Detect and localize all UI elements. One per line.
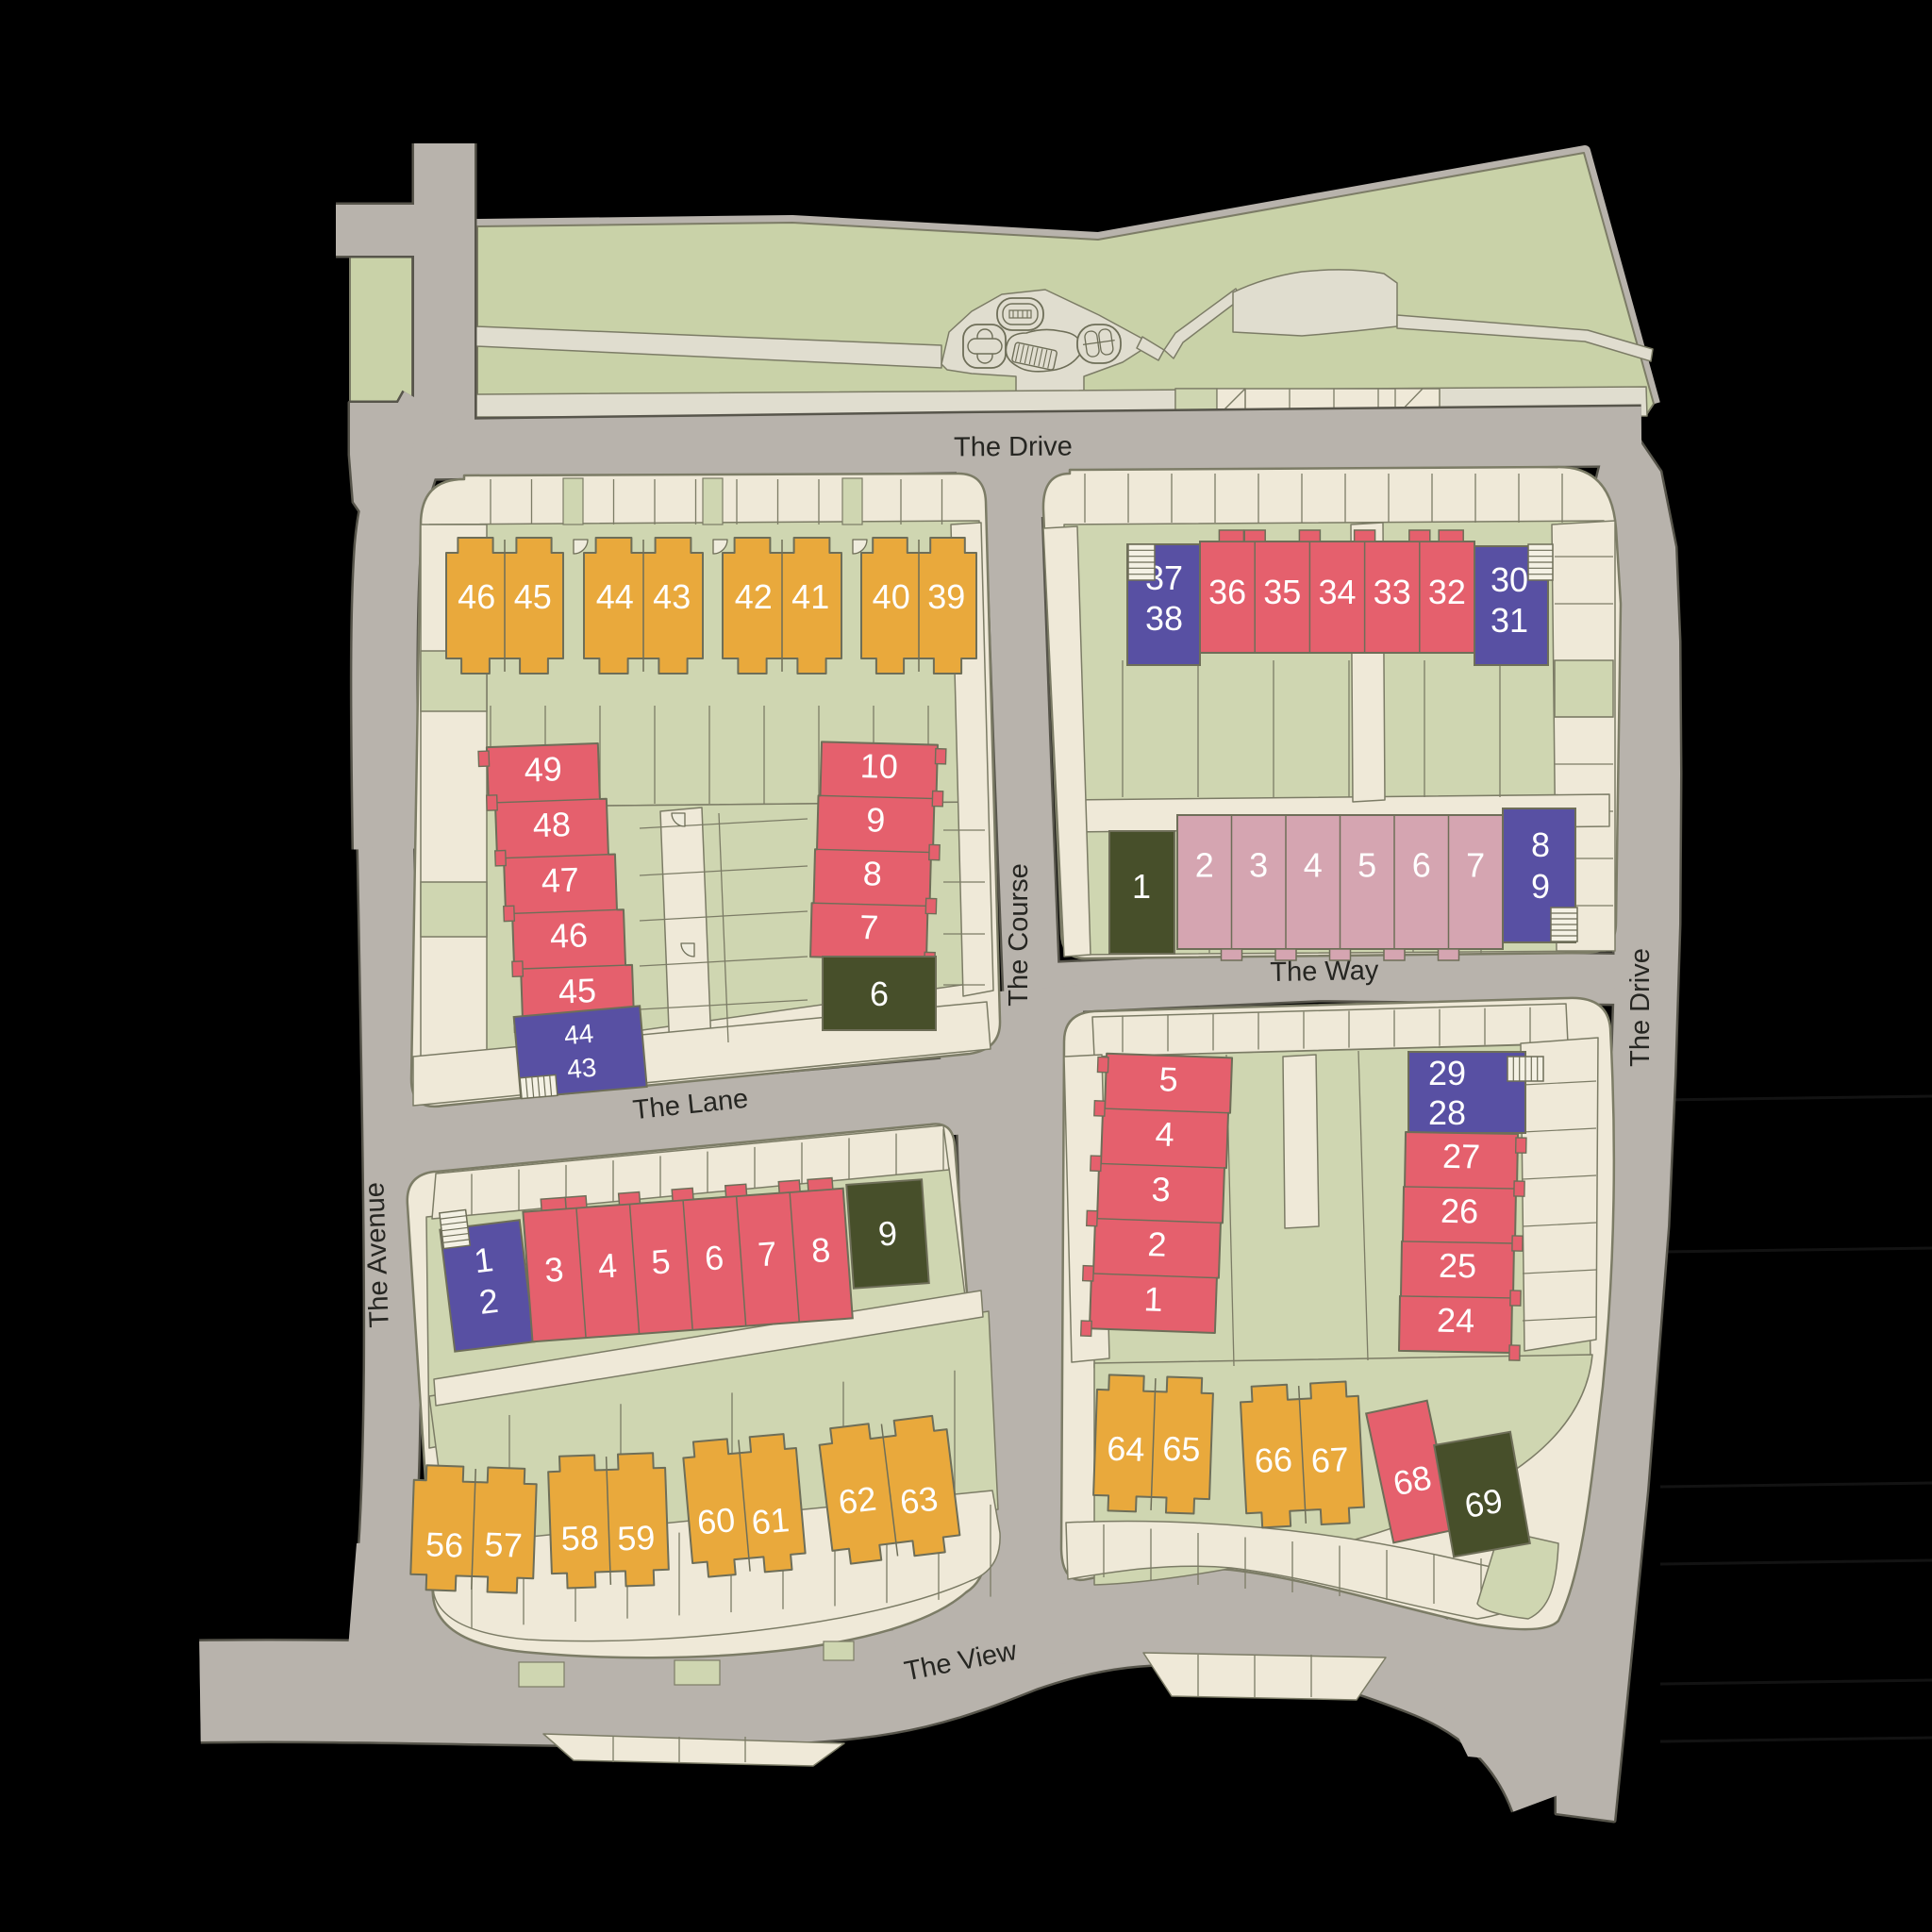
svg-text:5: 5: [1357, 845, 1376, 884]
svg-text:45: 45: [558, 971, 596, 1010]
svg-text:4: 4: [1155, 1114, 1174, 1154]
svg-text:3: 3: [1151, 1170, 1171, 1209]
svg-text:34: 34: [1318, 573, 1356, 611]
svg-text:The Drive: The Drive: [954, 431, 1073, 462]
svg-text:64: 64: [1107, 1429, 1145, 1469]
svg-text:10: 10: [859, 746, 898, 786]
svg-text:63: 63: [898, 1479, 941, 1523]
svg-text:1: 1: [1143, 1279, 1163, 1319]
svg-text:2: 2: [1195, 845, 1214, 884]
svg-text:65: 65: [1162, 1429, 1201, 1469]
svg-text:The Drive: The Drive: [1625, 948, 1656, 1067]
svg-text:68: 68: [1390, 1457, 1435, 1503]
svg-text:26: 26: [1441, 1191, 1479, 1231]
svg-text:32: 32: [1428, 573, 1466, 611]
svg-text:61: 61: [750, 1500, 791, 1541]
svg-text:The Course: The Course: [1004, 863, 1034, 1007]
svg-text:39: 39: [927, 577, 965, 616]
svg-text:5: 5: [650, 1241, 672, 1281]
svg-text:44: 44: [563, 1019, 595, 1051]
svg-text:66: 66: [1254, 1440, 1293, 1480]
svg-text:7: 7: [757, 1234, 778, 1274]
svg-text:67: 67: [1310, 1440, 1350, 1480]
svg-text:62: 62: [837, 1479, 879, 1523]
svg-text:3: 3: [1249, 845, 1268, 884]
svg-text:35: 35: [1263, 573, 1301, 611]
svg-text:69: 69: [1461, 1481, 1506, 1525]
svg-text:40: 40: [873, 577, 910, 616]
svg-text:9: 9: [1531, 867, 1550, 906]
svg-text:25: 25: [1439, 1246, 1477, 1286]
svg-text:57: 57: [484, 1524, 523, 1564]
svg-text:27: 27: [1442, 1137, 1481, 1176]
svg-text:The Avenue: The Avenue: [359, 1182, 394, 1328]
svg-text:44: 44: [596, 577, 634, 616]
svg-text:4: 4: [596, 1245, 618, 1285]
svg-text:31: 31: [1491, 601, 1528, 640]
svg-text:3: 3: [543, 1250, 565, 1290]
svg-text:47: 47: [541, 860, 579, 900]
svg-text:45: 45: [514, 577, 552, 616]
svg-text:29: 29: [1428, 1054, 1466, 1092]
svg-text:30: 30: [1491, 560, 1528, 599]
svg-text:28: 28: [1428, 1093, 1466, 1132]
svg-text:9: 9: [866, 800, 886, 840]
svg-text:9: 9: [877, 1213, 899, 1253]
svg-text:48: 48: [532, 805, 571, 844]
svg-text:6: 6: [704, 1238, 725, 1277]
svg-text:33: 33: [1374, 573, 1411, 611]
svg-text:1: 1: [1132, 867, 1151, 906]
svg-text:2: 2: [1147, 1224, 1167, 1264]
svg-text:8: 8: [862, 854, 882, 893]
svg-text:7: 7: [1466, 845, 1485, 884]
svg-text:The Way: The Way: [1270, 956, 1379, 988]
svg-text:42: 42: [735, 577, 773, 616]
svg-text:6: 6: [870, 974, 889, 1013]
svg-text:58: 58: [560, 1518, 599, 1557]
svg-text:4: 4: [1304, 845, 1323, 884]
svg-text:8: 8: [1531, 825, 1550, 864]
svg-text:56: 56: [425, 1524, 464, 1564]
svg-text:43: 43: [653, 577, 691, 616]
svg-text:7: 7: [859, 908, 879, 947]
svg-text:49: 49: [524, 749, 562, 789]
svg-text:24: 24: [1437, 1301, 1475, 1341]
svg-text:36: 36: [1208, 573, 1246, 611]
svg-text:43: 43: [566, 1053, 598, 1085]
svg-text:38: 38: [1145, 599, 1183, 638]
svg-text:46: 46: [549, 915, 588, 955]
svg-text:6: 6: [1412, 845, 1431, 884]
svg-text:60: 60: [695, 1500, 736, 1541]
svg-text:59: 59: [617, 1518, 656, 1557]
svg-text:46: 46: [458, 577, 495, 616]
svg-text:8: 8: [810, 1230, 832, 1270]
svg-text:5: 5: [1158, 1059, 1178, 1099]
svg-text:41: 41: [791, 577, 829, 616]
